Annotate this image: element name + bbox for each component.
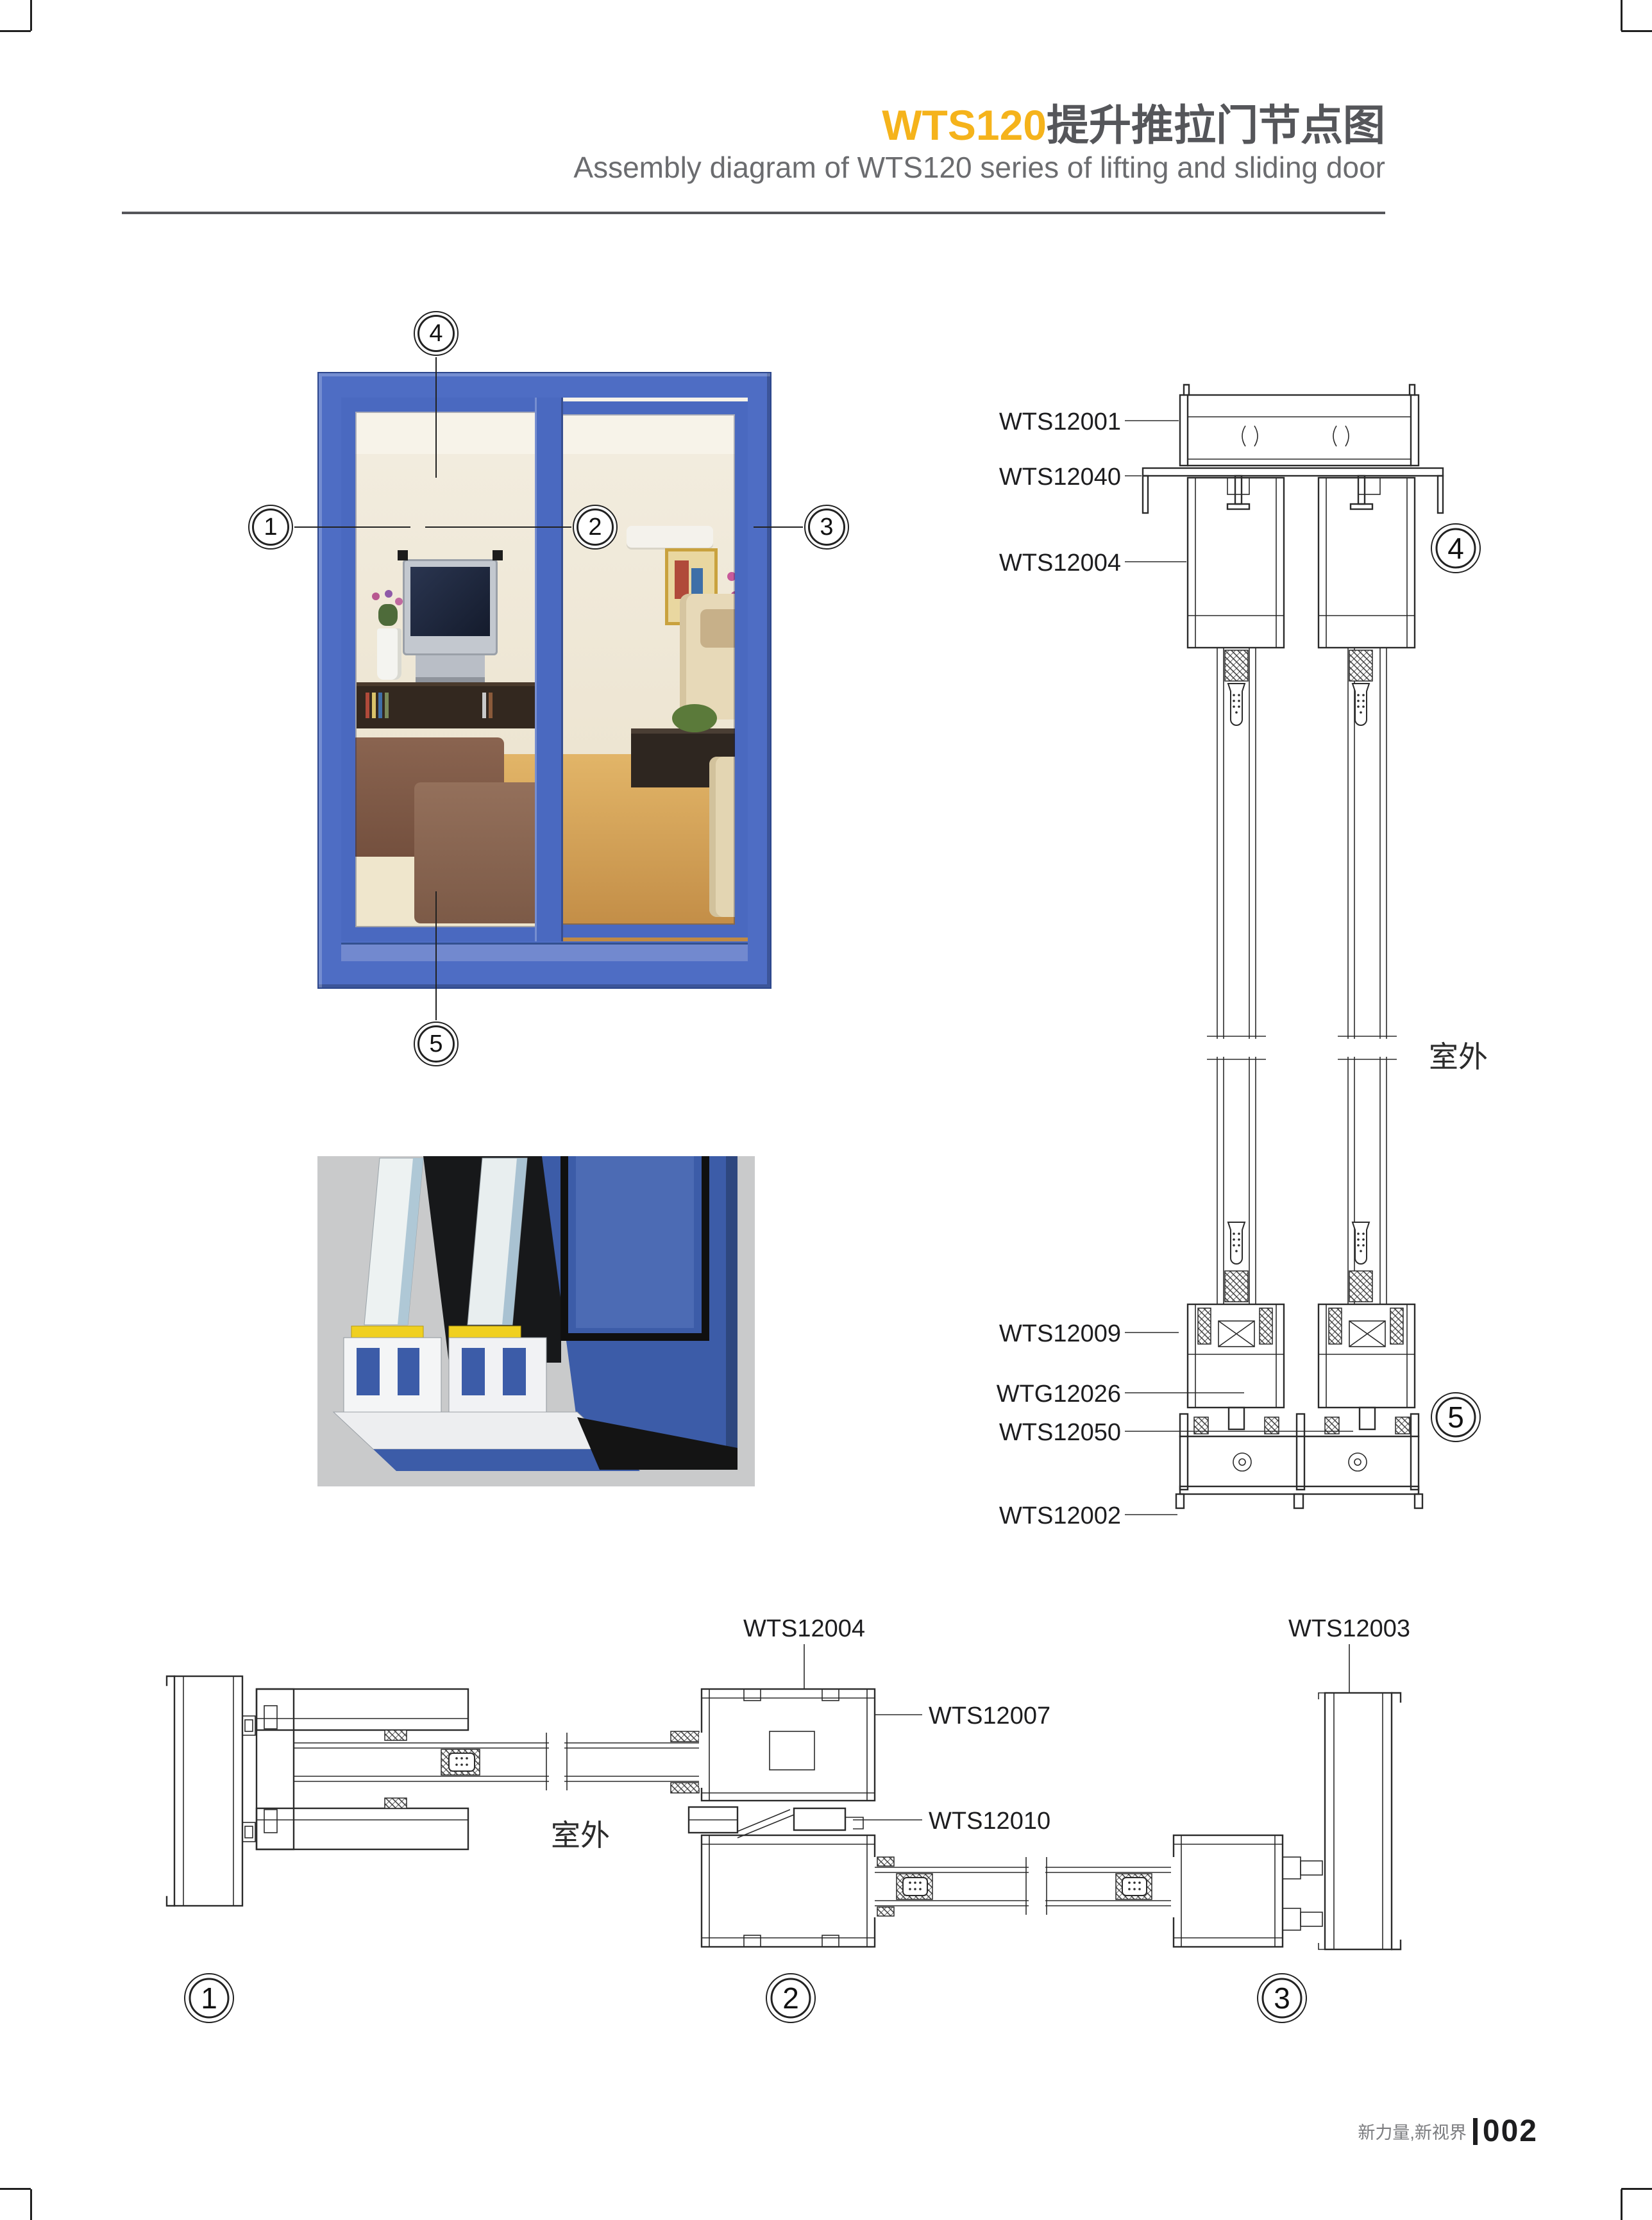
outdoor-label-vertical: 室外 [1429, 1040, 1488, 1073]
callout-3-section-number: 3 [1274, 1981, 1290, 2015]
callout-5-section-number: 5 [1447, 1400, 1464, 1434]
label-wts12007: WTS12007 [929, 1703, 1050, 1729]
callout-5: 5 [414, 1022, 459, 1066]
footer: 新力量,新视界 002 [1358, 2114, 1538, 2149]
leader-callout-5 [435, 891, 437, 1020]
break-symbol-left [1208, 1039, 1265, 1057]
render-insert-2 [398, 1348, 419, 1395]
callout-2: 2 [573, 505, 618, 550]
head-track-profile [1180, 385, 1419, 466]
left-sash [341, 398, 563, 941]
right-jamb-profile [1319, 1693, 1401, 1949]
label-wts12004-h: WTS12004 [743, 1615, 865, 1642]
label-wts12050: WTS12050 [999, 1419, 1121, 1446]
header-rule [122, 212, 1385, 214]
crop-mark-bottom-right-v [1621, 2189, 1622, 2220]
render-gasket-yellow-2 [449, 1326, 521, 1338]
horizontal-callout-3: 3 [1258, 1974, 1306, 2022]
meeting-stile-upper [699, 1689, 875, 1801]
render-inner-panel [576, 1156, 694, 1328]
bottom-track [341, 943, 748, 961]
break-symbol-right [1339, 1039, 1395, 1057]
callout-3: 3 [804, 505, 849, 550]
footer-divider [1473, 2118, 1478, 2145]
page-title: WTS120提升推拉门节点图 [573, 101, 1385, 149]
callout-2-number: 2 [577, 509, 614, 546]
vertical-section-diagram: WTS12001 WTS12040 WTS12004 WTS12009 WTG1… [988, 359, 1539, 1552]
render-slab-edge [726, 1156, 737, 1448]
header: WTS120提升推拉门节点图 Assembly diagram of WTS12… [573, 101, 1385, 185]
callout-1-number: 1 [252, 509, 289, 546]
catalog-page: WTS120提升推拉门节点图 Assembly diagram of WTS12… [0, 0, 1652, 2220]
meeting-stile-lower [702, 1835, 877, 1947]
render-sill-top [333, 1412, 617, 1449]
leader-callout-2 [425, 526, 571, 528]
footer-slogan: 新力量,新视界 [1358, 2119, 1467, 2144]
crop-mark-top-left-h [0, 30, 31, 32]
callout-2-section-number: 2 [782, 1981, 799, 2015]
label-wts12003: WTS12003 [1288, 1615, 1410, 1642]
interlock-hardware [689, 1807, 863, 1838]
crop-mark-bottom-right-h [1621, 2188, 1652, 2190]
title-series-code: WTS120 [882, 101, 1047, 149]
label-wts12002: WTS12002 [999, 1502, 1121, 1529]
render-gasket-yellow-1 [351, 1326, 423, 1338]
outdoor-label-horizontal: 室外 [551, 1819, 610, 1852]
callout-1: 1 [248, 505, 293, 550]
render-insert-3 [462, 1348, 485, 1395]
callout-5-number: 5 [417, 1025, 455, 1063]
render-insert-1 [357, 1348, 380, 1395]
left-panel-stile [257, 1689, 468, 1849]
right-sash [549, 401, 748, 938]
title-chinese: 提升推拉门节点图 [1047, 101, 1385, 149]
page-number: 002 [1483, 2114, 1538, 2149]
threshold-assembly [1176, 1304, 1422, 1508]
right-panel-stile [1171, 1835, 1322, 1947]
callout-4-section-number: 4 [1447, 532, 1464, 565]
meeting-stile [535, 398, 563, 941]
crop-mark-top-right-v [1621, 0, 1622, 31]
break-symbol-lower [1029, 1861, 1045, 1912]
page-subtitle: Assembly diagram of WTS120 series of lif… [573, 150, 1385, 185]
profile-3d-render [317, 1156, 755, 1486]
label-wtg12026: WTG12026 [997, 1381, 1121, 1408]
leader-callout-4 [435, 357, 437, 478]
crop-mark-top-left-v [30, 0, 32, 31]
horizontal-callout-1: 1 [185, 1974, 233, 2022]
label-wts12009: WTS12009 [999, 1320, 1121, 1347]
panel-head-rails [1188, 478, 1415, 648]
vertical-section-callout-4: 4 [1431, 524, 1480, 573]
horizontal-section-diagram: WTS12004 WTS12007 WTS12010 WTS12003 室外 1… [96, 1571, 1571, 2071]
door-photo [317, 372, 771, 989]
leader-callout-1 [294, 526, 410, 528]
left-glass-band [294, 1731, 702, 1793]
label-wts12004-v: WTS12004 [999, 550, 1121, 576]
horizontal-callout-2: 2 [766, 1974, 815, 2022]
callout-3-number: 3 [808, 509, 845, 546]
callout-4: 4 [414, 311, 459, 356]
break-symbol [549, 1736, 564, 1788]
vertical-section-callout-5: 5 [1431, 1393, 1480, 1442]
render-insert-4 [503, 1348, 526, 1395]
crop-mark-top-right-h [1621, 30, 1652, 32]
leader-callout-3 [754, 526, 803, 528]
label-wts12040: WTS12040 [999, 464, 1121, 491]
callout-4-number: 4 [417, 315, 455, 352]
left-jamb-profile [167, 1676, 255, 1906]
lower-glass-band [875, 1857, 1174, 1916]
glass-units [1207, 648, 1397, 1304]
label-wts12001: WTS12001 [999, 408, 1121, 435]
crop-mark-bottom-left-v [30, 2189, 32, 2220]
crop-mark-bottom-left-h [0, 2188, 31, 2190]
label-wts12010: WTS12010 [929, 1808, 1050, 1835]
callout-1-section-number: 1 [201, 1981, 217, 2015]
